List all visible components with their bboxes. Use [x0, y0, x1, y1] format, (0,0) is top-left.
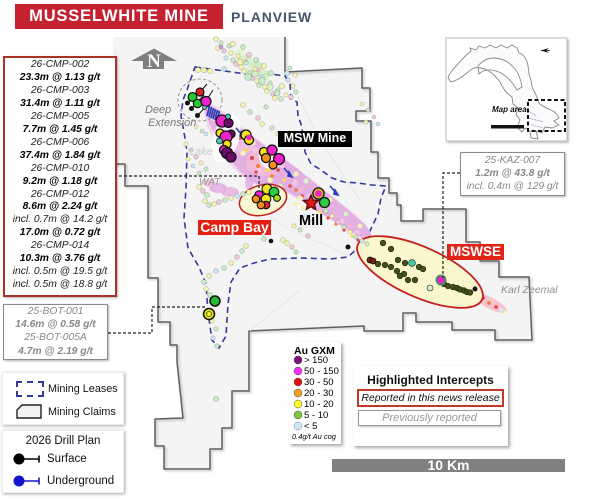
svg-text:50 - 150: 50 - 150 [304, 366, 339, 377]
svg-text:10 - 20: 10 - 20 [304, 399, 334, 410]
svg-text:Map area: Map area [492, 105, 527, 114]
svg-text:N: N [147, 51, 161, 72]
svg-text:> 150: > 150 [304, 355, 328, 366]
svg-text:< 5: < 5 [304, 421, 317, 432]
svg-text:20 - 30: 20 - 30 [304, 388, 334, 399]
svg-text:30 - 50: 30 - 50 [304, 377, 334, 388]
svg-text:5 - 10: 5 - 10 [304, 410, 328, 421]
svg-text:0.4g/t Au cog: 0.4g/t Au cog [292, 432, 337, 441]
